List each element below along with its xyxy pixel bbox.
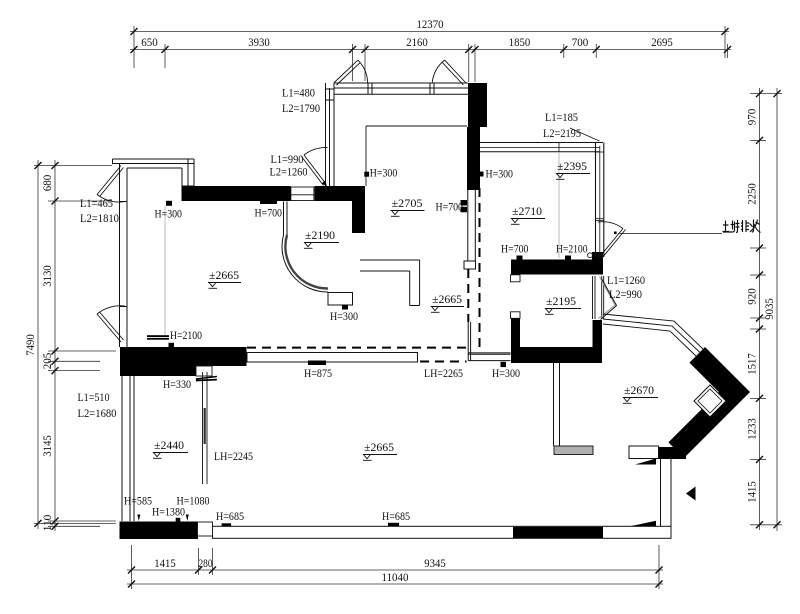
svg-text:±2705: ±2705 xyxy=(392,196,423,210)
svg-text:±2665: ±2665 xyxy=(209,268,239,282)
svg-text:1517: 1517 xyxy=(745,353,759,375)
svg-text:H=700: H=700 xyxy=(436,200,464,214)
svg-text:LH=2265: LH=2265 xyxy=(424,366,463,380)
svg-text:700: 700 xyxy=(572,35,589,49)
svg-text:L1=1260: L1=1260 xyxy=(607,273,645,287)
svg-text:L2=1260: L2=1260 xyxy=(270,165,308,179)
svg-text:±2395: ±2395 xyxy=(557,159,587,173)
svg-text:12370: 12370 xyxy=(417,17,444,31)
svg-text:H=875: H=875 xyxy=(304,366,332,380)
svg-text:1850: 1850 xyxy=(509,35,531,49)
svg-text:H=330: H=330 xyxy=(163,377,191,391)
svg-text:H=700: H=700 xyxy=(255,206,283,220)
svg-text:±2440: ±2440 xyxy=(154,438,184,452)
svg-text:H=300: H=300 xyxy=(155,207,183,221)
svg-text:3130: 3130 xyxy=(40,265,54,287)
svg-text:1233: 1233 xyxy=(745,418,759,440)
svg-text:H=1380: H=1380 xyxy=(152,505,185,519)
svg-text:H=300: H=300 xyxy=(370,166,398,180)
svg-text:H=300: H=300 xyxy=(330,309,358,323)
svg-text:9035: 9035 xyxy=(762,298,776,320)
svg-text:H=2100: H=2100 xyxy=(556,242,588,256)
svg-text:L1=185: L1=185 xyxy=(545,110,578,124)
svg-text:H=700: H=700 xyxy=(501,242,529,256)
svg-text:H=300: H=300 xyxy=(486,167,514,181)
svg-text:L1=480: L1=480 xyxy=(282,86,315,100)
svg-text:±2195: ±2195 xyxy=(546,294,576,308)
svg-text:650: 650 xyxy=(141,35,158,49)
svg-text:920: 920 xyxy=(745,288,759,305)
svg-text:2160: 2160 xyxy=(406,35,428,49)
svg-text:H=300: H=300 xyxy=(492,366,520,380)
svg-text:680: 680 xyxy=(40,175,54,192)
svg-text:±2670: ±2670 xyxy=(624,383,654,397)
svg-text:L1=465: L1=465 xyxy=(80,196,113,210)
svg-text:3145: 3145 xyxy=(40,435,54,457)
svg-text:L2=1680: L2=1680 xyxy=(78,406,117,420)
svg-text:H=685: H=685 xyxy=(216,509,244,523)
svg-text:11040: 11040 xyxy=(382,570,409,584)
svg-text:L2=990: L2=990 xyxy=(609,287,642,301)
svg-text:110: 110 xyxy=(40,515,54,532)
svg-text:1415: 1415 xyxy=(154,556,176,570)
svg-text:970: 970 xyxy=(745,109,759,126)
svg-text:H=685: H=685 xyxy=(382,509,410,523)
svg-text:2250: 2250 xyxy=(745,183,759,205)
svg-text:LH=2245: LH=2245 xyxy=(214,449,253,463)
svg-text:7490: 7490 xyxy=(23,334,37,356)
svg-text:2695: 2695 xyxy=(651,35,673,49)
svg-text:9345: 9345 xyxy=(424,556,446,570)
svg-text:±2665: ±2665 xyxy=(364,440,394,454)
svg-text:L2=2195: L2=2195 xyxy=(543,126,581,140)
svg-text:280: 280 xyxy=(199,556,213,570)
svg-text:±2665: ±2665 xyxy=(432,292,462,306)
svg-text:L2=1810: L2=1810 xyxy=(80,211,119,225)
svg-text:L1=510: L1=510 xyxy=(78,390,110,404)
svg-text:L2=1790: L2=1790 xyxy=(282,101,320,115)
svg-text:H=2100: H=2100 xyxy=(170,328,202,342)
svg-text:3930: 3930 xyxy=(248,35,270,49)
svg-text:1415: 1415 xyxy=(745,481,759,503)
svg-text:H=585: H=585 xyxy=(124,494,152,508)
svg-text:±2710: ±2710 xyxy=(512,204,542,218)
svg-text:205: 205 xyxy=(40,353,54,370)
svg-text:±2190: ±2190 xyxy=(305,228,335,242)
